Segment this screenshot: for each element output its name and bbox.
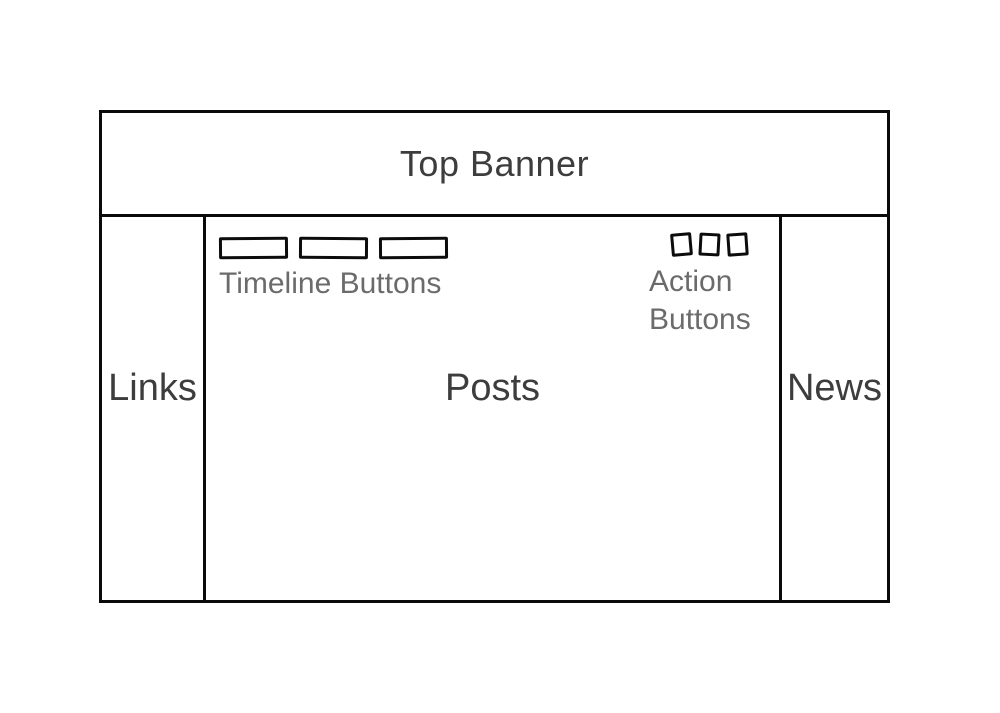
links-label: Links xyxy=(102,367,203,410)
action-button-placeholder[interactable] xyxy=(698,232,720,256)
timeline-buttons-group: Timeline Buttons xyxy=(219,237,448,303)
timeline-button-placeholder[interactable] xyxy=(219,237,288,260)
action-buttons-group: Action Buttons xyxy=(649,233,751,339)
timeline-button-placeholder[interactable] xyxy=(379,237,448,259)
wireframe-canvas: Top Banner Links Timeline Buttons xyxy=(0,0,1000,713)
right-sidebar-region: News xyxy=(779,217,887,600)
top-banner-region: Top Banner xyxy=(102,113,887,217)
timeline-button-placeholder[interactable] xyxy=(299,237,368,259)
action-button-placeholder[interactable] xyxy=(726,232,749,256)
news-label: News xyxy=(782,367,887,410)
action-buttons-row xyxy=(671,233,751,256)
posts-region: Timeline Buttons Action Buttons Posts xyxy=(206,217,779,600)
action-buttons-label-line2: Buttons xyxy=(649,301,751,339)
top-banner-label: Top Banner xyxy=(400,143,589,185)
timeline-buttons-label: Timeline Buttons xyxy=(219,265,448,303)
wireframe-body: Links Timeline Buttons xyxy=(102,217,887,600)
wireframe-frame: Top Banner Links Timeline Buttons xyxy=(99,110,890,603)
action-buttons-label-line1: Action xyxy=(649,263,751,301)
timeline-buttons-row xyxy=(219,237,448,259)
left-sidebar-region: Links xyxy=(102,217,206,600)
posts-label: Posts xyxy=(206,367,779,410)
action-button-placeholder[interactable] xyxy=(670,232,693,257)
